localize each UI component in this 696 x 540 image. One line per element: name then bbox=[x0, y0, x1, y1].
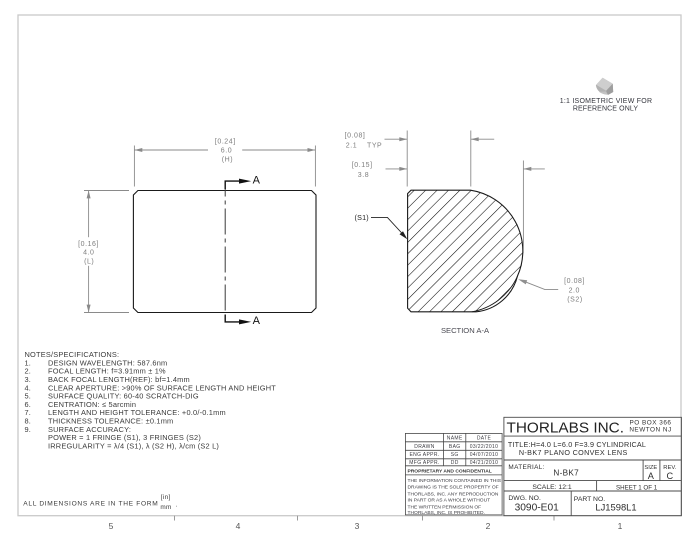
svg-text:4: 4 bbox=[236, 521, 241, 531]
svg-text:DRAWING IS THE SOLE PROPERTY O: DRAWING IS THE SOLE PROPERTY OF bbox=[408, 485, 499, 491]
svg-text:[in]: [in] bbox=[161, 494, 171, 501]
svg-text:IRREGULARITY = λ/4 (S1), λ (S2: IRREGULARITY = λ/4 (S1), λ (S2 H), λ/cm … bbox=[48, 442, 219, 451]
svg-text:NEWTON NJ: NEWTON NJ bbox=[629, 426, 671, 433]
svg-text:[0.08]: [0.08] bbox=[345, 132, 366, 139]
svg-text:ENG APPR.: ENG APPR. bbox=[409, 452, 439, 458]
svg-text:(L): (L) bbox=[84, 258, 94, 265]
svg-text:ALL DIMENSIONS ARE IN THE FORM: ALL DIMENSIONS ARE IN THE FORM bbox=[23, 500, 158, 507]
svg-text:(S1): (S1) bbox=[355, 213, 369, 222]
svg-text:PROPRIETARY AND CONFIDENTIAL: PROPRIETARY AND CONFIDENTIAL bbox=[408, 468, 492, 474]
svg-text:[0.24]: [0.24] bbox=[215, 139, 236, 146]
svg-text:6.0: 6.0 bbox=[221, 148, 232, 155]
svg-text:THORLABS, INC. IS PROHIBITED.: THORLABS, INC. IS PROHIBITED. bbox=[408, 510, 485, 516]
svg-text:(S2): (S2) bbox=[567, 297, 582, 304]
svg-text:2.0: 2.0 bbox=[569, 287, 580, 294]
svg-text:DRAWN: DRAWN bbox=[414, 444, 434, 450]
svg-text:THE INFORMATION CONTAINED IN T: THE INFORMATION CONTAINED IN THIS bbox=[408, 478, 502, 484]
svg-text:MATERIAL:: MATERIAL: bbox=[508, 464, 544, 471]
svg-text:DD: DD bbox=[451, 460, 459, 466]
svg-text:TYP: TYP bbox=[367, 142, 382, 149]
svg-text:03/22/2010: 03/22/2010 bbox=[470, 444, 499, 450]
svg-text:A: A bbox=[253, 315, 261, 327]
svg-text:04/07/2010: 04/07/2010 bbox=[470, 452, 499, 458]
svg-text:THE WRITTEN PERMISSION OF: THE WRITTEN PERMISSION OF bbox=[408, 504, 482, 510]
svg-text:2.1: 2.1 bbox=[346, 142, 357, 149]
svg-text:(H): (H) bbox=[222, 156, 233, 163]
svg-text:2: 2 bbox=[486, 521, 491, 531]
svg-text:3.8: 3.8 bbox=[358, 172, 369, 179]
svg-text:1: 1 bbox=[618, 521, 623, 531]
svg-text:LJ1598L1: LJ1598L1 bbox=[595, 501, 636, 512]
svg-text:SCALE: 12:1: SCALE: 12:1 bbox=[532, 484, 572, 491]
svg-text:DATE: DATE bbox=[477, 436, 492, 442]
svg-text:MFG APPR.: MFG APPR. bbox=[409, 460, 439, 466]
svg-text:SHEET 1 OF 1: SHEET 1 OF 1 bbox=[616, 484, 658, 491]
svg-text:.: . bbox=[175, 501, 177, 508]
svg-text:A: A bbox=[648, 471, 655, 481]
svg-text:DWG. NO.: DWG. NO. bbox=[508, 495, 541, 502]
svg-text:mm: mm bbox=[160, 504, 171, 511]
svg-text:04/21/2010: 04/21/2010 bbox=[470, 460, 499, 466]
svg-text:N-BK7 PLANO CONVEX LENS: N-BK7 PLANO CONVEX LENS bbox=[519, 448, 628, 457]
svg-text:PO BOX 366: PO BOX 366 bbox=[630, 419, 672, 426]
svg-text:9.: 9. bbox=[25, 425, 32, 434]
svg-text:[0.16]: [0.16] bbox=[78, 241, 99, 248]
svg-text:3: 3 bbox=[355, 521, 360, 531]
svg-text:BAG: BAG bbox=[449, 444, 461, 450]
svg-text:5: 5 bbox=[109, 521, 114, 531]
svg-text:REFERENCE ONLY: REFERENCE ONLY bbox=[573, 106, 639, 113]
svg-text:SECTION A-A: SECTION A-A bbox=[441, 326, 490, 335]
svg-text:3090-E01: 3090-E01 bbox=[515, 502, 560, 513]
svg-text:C: C bbox=[666, 471, 673, 481]
svg-text:1:1 ISOMETRIC VIEW FOR: 1:1 ISOMETRIC VIEW FOR bbox=[560, 98, 653, 105]
svg-text:NAME: NAME bbox=[447, 436, 463, 442]
svg-text:[0.08]: [0.08] bbox=[564, 278, 585, 285]
svg-text:N-BK7: N-BK7 bbox=[553, 468, 579, 477]
svg-text:4.0: 4.0 bbox=[83, 250, 94, 257]
svg-text:[0.15]: [0.15] bbox=[352, 162, 373, 169]
svg-text:A: A bbox=[253, 175, 261, 187]
svg-text:IN PART OR AS A WHOLE WITHOUT: IN PART OR AS A WHOLE WITHOUT bbox=[408, 497, 491, 503]
svg-text:THORLABS, INC. ANY REPRODUCTI: THORLABS, INC. ANY REPRODUCTION bbox=[408, 491, 499, 497]
svg-text:THORLABS INC.: THORLABS INC. bbox=[507, 421, 625, 437]
svg-text:SG: SG bbox=[451, 452, 459, 458]
